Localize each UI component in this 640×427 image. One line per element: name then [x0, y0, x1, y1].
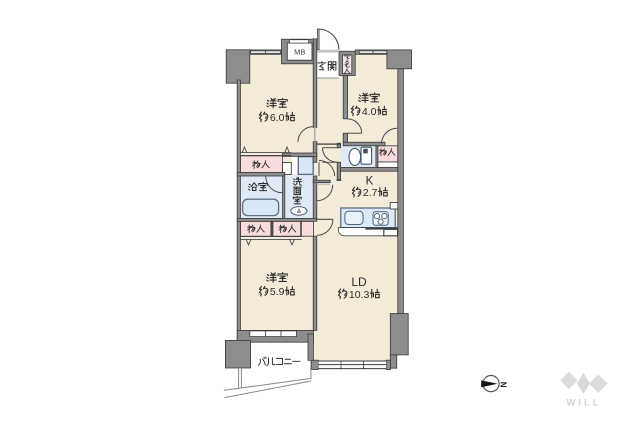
svg-text:N: N — [498, 382, 507, 388]
svg-text:10.3: 10.3 — [349, 289, 370, 301]
svg-text:WILL: WILL — [566, 398, 601, 409]
svg-text:K: K — [366, 176, 374, 188]
svg-text:MB: MB — [294, 47, 305, 56]
svg-text:4.0: 4.0 — [362, 106, 377, 118]
svg-text:5.9: 5.9 — [270, 286, 285, 298]
svg-text:6.0: 6.0 — [270, 112, 285, 124]
svg-text:2.7: 2.7 — [363, 187, 378, 199]
svg-text:LD: LD — [351, 275, 367, 289]
